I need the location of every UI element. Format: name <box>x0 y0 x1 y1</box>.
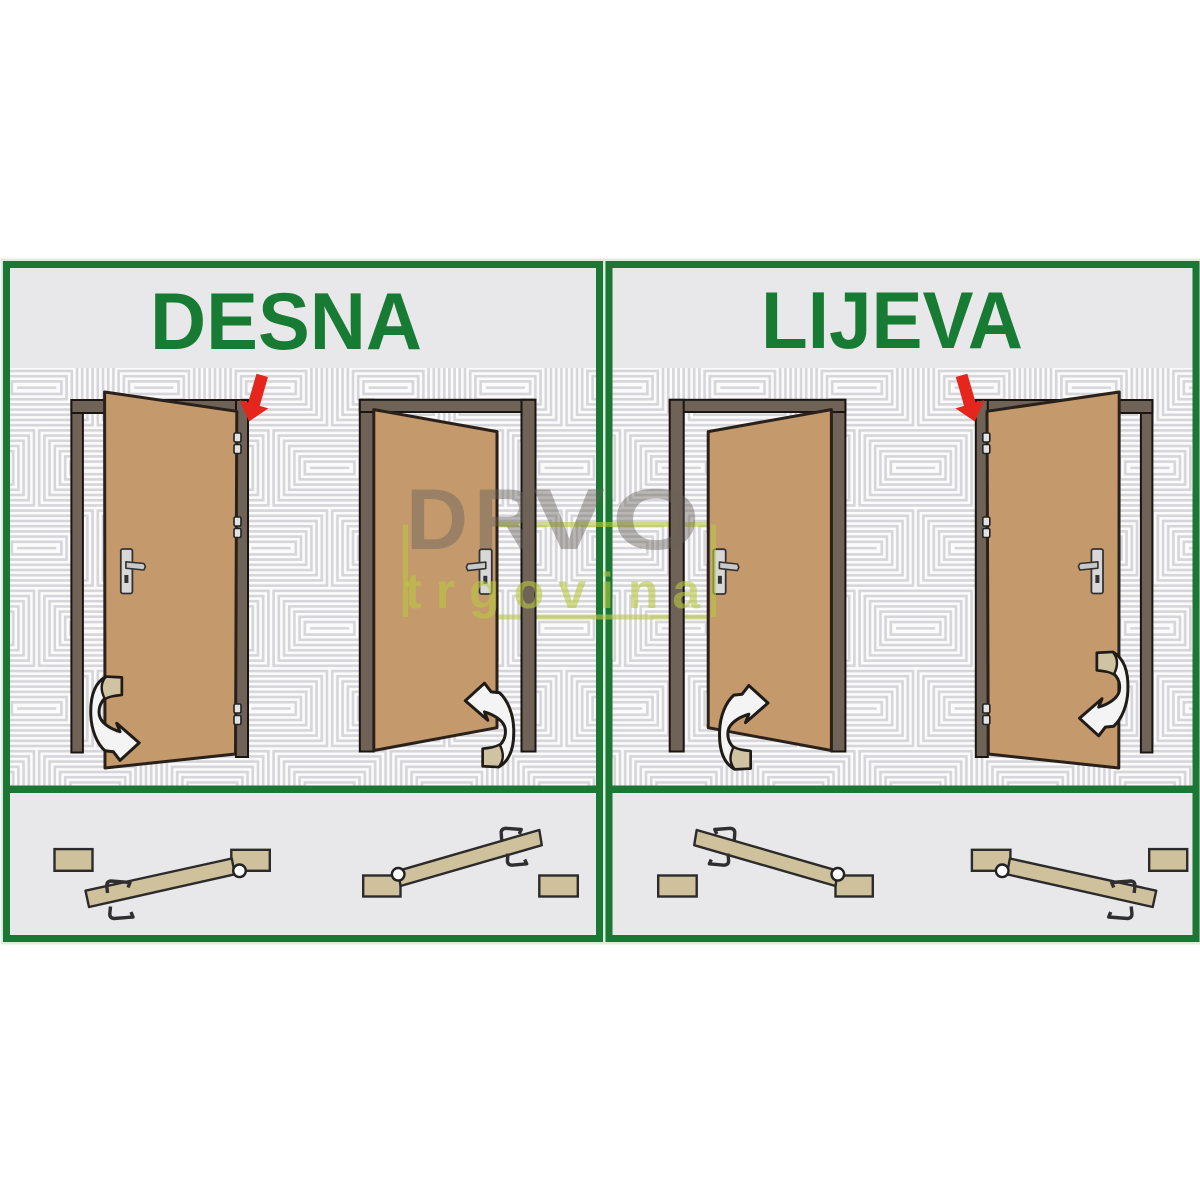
svg-text:LIJEVA: LIJEVA <box>761 276 1023 366</box>
svg-text:V: V <box>533 472 605 568</box>
svg-text:R: R <box>474 472 536 568</box>
svg-text:DESNA: DESNA <box>150 277 422 367</box>
svg-text:trgovina: trgovina <box>405 563 714 619</box>
svg-text:D: D <box>406 472 468 568</box>
svg-text:O: O <box>612 472 700 568</box>
